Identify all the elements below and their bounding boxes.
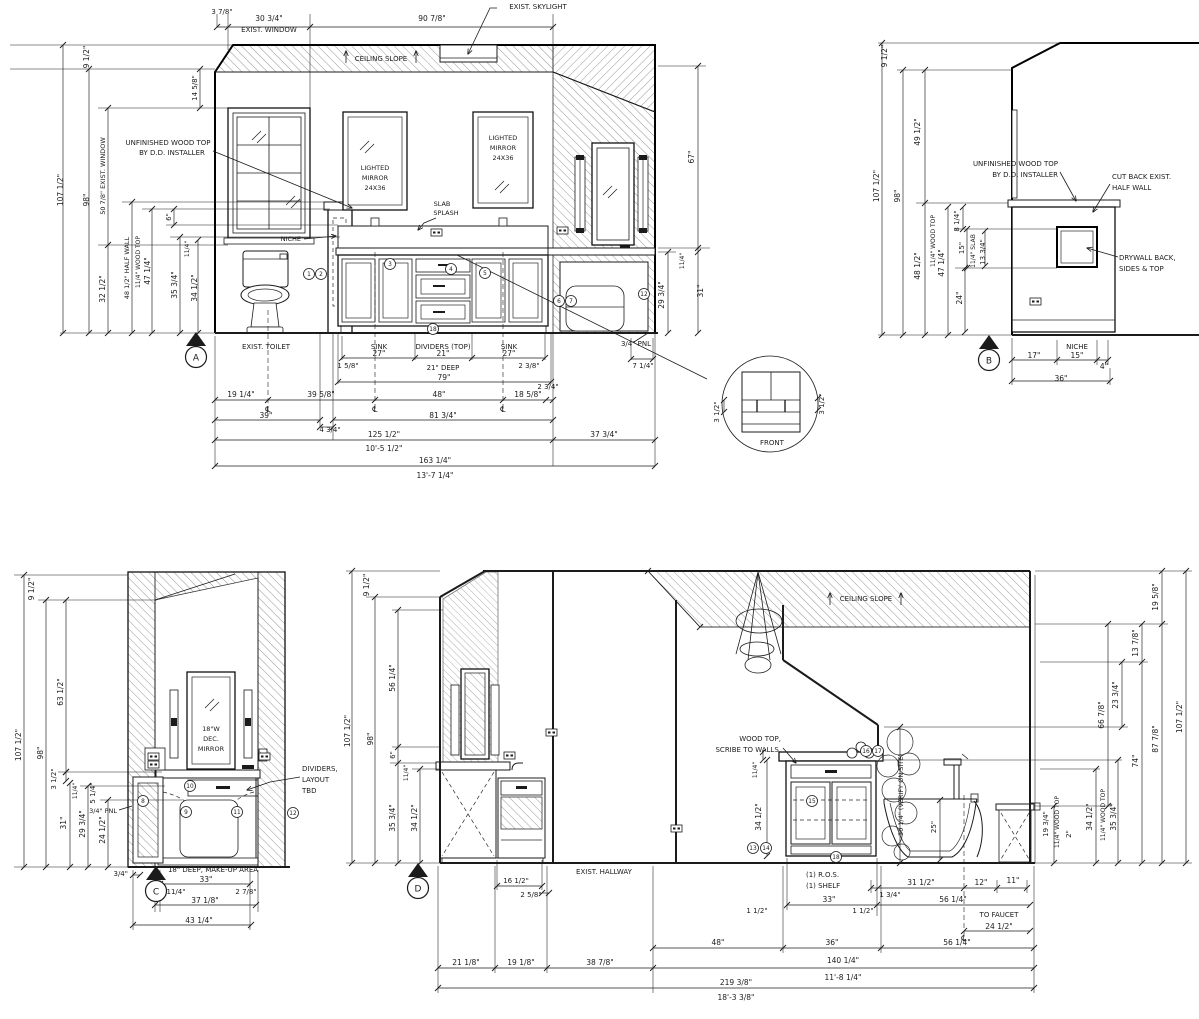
dim-label: 11/4" — [752, 762, 759, 778]
svg-text:2: 2 — [319, 272, 323, 278]
dim-label: EXIST. HALLWAY — [576, 868, 633, 876]
dim-label: 48 1/2" HALF WALL — [123, 236, 131, 299]
dim-label: CUT BACK EXIST. — [1112, 173, 1171, 181]
svg-text:17: 17 — [874, 749, 882, 755]
dim-label: 24" — [955, 292, 964, 305]
dim-label: 2 7/8" — [235, 888, 256, 896]
dim-label: 18 5/8" — [514, 390, 541, 399]
dim-label: 11/4" WOOD TOP — [1054, 796, 1061, 848]
dim-label: 19 1/8" — [507, 958, 534, 967]
callout-bubble-13: 13 — [748, 843, 759, 854]
callout-bubble-10: 10 — [185, 781, 196, 792]
callout-bubble-8: 8 — [138, 796, 149, 807]
vanity — [336, 218, 550, 333]
dim-label: 12" — [975, 878, 988, 887]
sconce-left — [575, 155, 585, 233]
dim-label: 3 1/2" — [50, 768, 58, 789]
dim-label: 67" — [687, 151, 696, 164]
dim-label: 98" — [893, 190, 902, 203]
dim-label: 16 1/2" — [503, 877, 529, 885]
dim-label: 34 1/2" — [1085, 803, 1094, 830]
dim-label: 29 3/4" — [78, 810, 87, 837]
dim-label: 19 5/8" — [1151, 583, 1160, 610]
dim-label: 31" — [696, 285, 705, 298]
dim-label: ℄ — [372, 405, 378, 414]
outlet-icon — [671, 825, 682, 832]
outlet-icon — [259, 753, 270, 760]
svg-text:11: 11 — [233, 810, 241, 816]
dim-label: 98" — [366, 733, 375, 746]
dim-label: DRYWALL BACK, — [1119, 254, 1176, 262]
dim-label: 66 7/8" — [1097, 701, 1106, 728]
dim-label: 219 3/8" — [720, 978, 752, 987]
svg-text:18: 18 — [832, 855, 840, 861]
dim-label: 24 1/2" — [98, 816, 107, 843]
dim-label: HALF WALL — [1112, 184, 1151, 192]
callout-bubble-7: 7 — [566, 296, 577, 307]
dim-label: EXIST. WINDOW — [241, 26, 297, 34]
dim-label: 107 1/2" — [343, 715, 352, 747]
dim-label: 107 1/2" — [872, 170, 881, 202]
dim-label: MIRROR — [490, 144, 517, 152]
dim-label: 19 3/4" — [1042, 811, 1050, 837]
dim-label: (1) SHELF — [806, 882, 840, 890]
dim-label: 1 1/2" — [746, 907, 767, 915]
dim-label: 98" — [82, 194, 91, 207]
dim-label: 56 1/4" — [388, 664, 397, 691]
callout-bubble-4: 4 — [446, 264, 457, 275]
outlet-icon — [546, 729, 557, 736]
dim-label: 3 1/2" — [713, 401, 721, 422]
dim-label: 7 1/4" — [632, 362, 653, 370]
dim-label: 36" — [826, 938, 839, 947]
dim-label: 81 3/4" — [429, 411, 456, 420]
dim-label: 3/4" — [114, 870, 129, 878]
dim-label: 15" — [958, 242, 966, 254]
dim-label: 49 1/2" — [913, 118, 922, 145]
dim-label: 14 5/8" — [191, 75, 199, 101]
dim-label: 32 1/2" — [98, 275, 107, 302]
callout-bubble-12: 12 — [639, 289, 650, 300]
dim-label: SPLASH — [433, 209, 458, 217]
callout-bubble-3: 3 — [385, 259, 396, 270]
dim-label: 11" — [1007, 876, 1020, 885]
svg-text:7: 7 — [569, 299, 573, 305]
svg-text:10: 10 — [186, 784, 194, 790]
dim-label: 2" — [1065, 830, 1073, 838]
dim-label: 47 1/4" — [143, 257, 152, 284]
dim-label: 23 3/4" — [1111, 681, 1120, 708]
wood-top — [1008, 200, 1120, 207]
dim-label: 11/4" SLAB — [970, 234, 977, 268]
svg-text:18: 18 — [429, 327, 437, 333]
callout-bubble-16: 16 — [861, 746, 872, 757]
outlet-icon — [431, 229, 442, 236]
dim-label: SLAB — [434, 200, 451, 208]
svg-text:3: 3 — [388, 262, 392, 268]
dim-label: EXIST. SKYLIGHT — [509, 3, 567, 11]
outlet-icon — [1030, 298, 1041, 305]
dim-label: 90 7/8" — [418, 14, 445, 23]
sconce-right — [244, 690, 252, 758]
dim-label: 24X36 — [365, 184, 386, 192]
dim-label: 31" — [59, 817, 68, 830]
dim-label: 11/4" — [72, 783, 79, 799]
dim-label: 63 1/2" — [56, 678, 65, 705]
dim-label: 39" — [260, 411, 273, 420]
dim-label: 107 1/2" — [56, 174, 65, 206]
callout-bubble-11: 11 — [232, 807, 243, 818]
svg-text:5: 5 — [483, 271, 487, 277]
svg-text:D: D — [415, 885, 422, 895]
dim-label: 13 7/8" — [1131, 629, 1140, 656]
dim-label: 38 7/8" — [586, 958, 613, 967]
sconce-right — [638, 155, 648, 233]
callout-bubble-6: 6 — [554, 296, 565, 307]
callout-bubble-15: 15 — [807, 796, 818, 807]
dim-label: DIVIDERS, — [302, 765, 338, 773]
dim-label: 140 1/4" — [827, 956, 859, 965]
dim-label: 3/4" PNL — [89, 807, 117, 815]
dim-label: 87 7/8" — [1151, 725, 1160, 752]
dim-label: BY D.D. INSTALLER — [992, 171, 1058, 179]
dim-label: TBD — [301, 787, 316, 795]
callout-bubble-2: 2 — [316, 269, 327, 280]
dim-label: 163 1/4" — [419, 456, 451, 465]
dim-label: 1 5/8" — [337, 362, 358, 370]
dim-label: 6" — [165, 213, 173, 221]
dim-label: CEILING SLOPE — [840, 595, 892, 603]
dim-label: UNFINISHED WOOD TOP — [973, 160, 1058, 168]
dim-label: 125 1/2" — [368, 430, 400, 439]
right-wall-hatch — [258, 572, 285, 867]
dim-label: 48" — [433, 390, 446, 399]
dim-label: 107 1/2" — [14, 729, 23, 761]
dim-label: 6" — [389, 751, 397, 759]
dim-label: LIGHTED — [361, 164, 390, 172]
svg-text:6: 6 — [557, 299, 561, 305]
dim-label: 17" — [1028, 351, 1041, 360]
dim-label: 21" — [437, 349, 450, 358]
svg-text:14: 14 — [762, 846, 770, 852]
dim-label: 37 1/8" — [191, 896, 218, 905]
sconce-left — [170, 690, 178, 758]
dim-label: 11/4" WOOD TOP — [1100, 789, 1107, 841]
svg-text:4: 4 — [449, 267, 453, 273]
dim-label: 13 3/4" — [979, 239, 987, 265]
callout-bubble-18: 18 — [428, 324, 439, 335]
dim-label: 107 1/2" — [1175, 701, 1184, 733]
dim-label: SCRIBE TO WALLS. — [715, 746, 781, 754]
dim-label: 47 1/4" — [937, 249, 946, 276]
dim-label: 18" DEEP, MAKE-UP AREA — [168, 866, 258, 874]
drawing-sheet: 3 7/8"30 3/4"EXIST. WINDOW90 7/8"EXIST. … — [0, 0, 1199, 1019]
callout-bubble-14: 14 — [761, 843, 772, 854]
dim-label: 4 3/4" — [319, 426, 340, 434]
svg-text:B: B — [986, 357, 992, 367]
dim-label: 43 1/4" — [185, 916, 212, 925]
dim-label: 18"W — [202, 725, 220, 733]
dim-label: SIDES & TOP — [1119, 265, 1164, 273]
dim-label: 11/4" WOOD TOP — [930, 215, 937, 267]
dim-label: DEC. — [203, 735, 219, 743]
dim-label: 15" — [1071, 351, 1084, 360]
dim-label: 1 1/2" — [852, 907, 873, 915]
dim-label: 4" — [1100, 362, 1108, 371]
dim-label: 3 1/2" — [818, 393, 826, 414]
dim-label: 11/4" WOOD TOP — [135, 236, 142, 288]
dim-label: 3 7/8" — [211, 8, 232, 16]
outlet-icon — [148, 753, 159, 760]
makeup-counter-right — [548, 241, 655, 331]
svg-text:15: 15 — [808, 799, 816, 805]
dim-label: CEILING SLOPE — [355, 55, 407, 63]
dim-label: MIRROR — [362, 174, 389, 182]
dim-label: 24 1/2" — [985, 922, 1012, 931]
dim-label: 19 1/4" — [227, 390, 254, 399]
dim-label: ℄ — [500, 405, 506, 414]
lighted-mirror-left — [343, 112, 407, 210]
dim-label: 98" — [36, 747, 45, 760]
svg-text:9: 9 — [184, 810, 188, 816]
dim-label: (1) R.O.S. — [806, 871, 839, 879]
dim-label: 9 1/2" — [82, 46, 91, 69]
callout-bubble-17: 17 — [873, 746, 884, 757]
dim-label: 11/4" — [403, 765, 410, 781]
callout-bubble-5: 5 — [480, 268, 491, 279]
dim-label: 35 3/4" — [388, 804, 397, 831]
dim-label: 11/4" — [679, 253, 686, 269]
dim-label: 29 3/4" — [657, 281, 666, 308]
dim-label: 30 3/4" — [255, 14, 282, 23]
svg-text:12: 12 — [289, 811, 297, 817]
dim-label: WOOD TOP, — [739, 735, 781, 743]
dim-label: 34 1/2" — [190, 274, 199, 301]
dim-label: 2 5/8" — [520, 891, 541, 899]
dim-label: 39 5/8" — [307, 390, 334, 399]
dim-label: 11/4" — [167, 888, 186, 896]
dim-label: 8 1/4" — [953, 210, 961, 231]
side-panel-cabinet — [133, 777, 163, 863]
dim-label: 5 1/4" — [89, 782, 97, 803]
dim-label: 36" — [1055, 374, 1068, 383]
dim-label: 9 1/2" — [27, 578, 36, 601]
dim-label: 2 3/8" — [518, 362, 539, 370]
dim-label: 56 1/4" — [943, 938, 970, 947]
tub-faucet — [954, 764, 959, 799]
medicine-mirror — [592, 143, 634, 245]
svg-text:13: 13 — [749, 846, 757, 852]
side-table — [996, 804, 1034, 862]
outlet-icon — [148, 761, 159, 768]
mirror-edge-profile — [1012, 110, 1017, 198]
dim-label: 50 7/8" EXIST. WINDOW — [99, 137, 107, 215]
dim-label: 27" — [503, 349, 516, 358]
dim-label: FRONT — [760, 439, 785, 447]
dim-label: 48 1/2" — [913, 252, 922, 279]
elevations-drawing: 3 7/8"30 3/4"EXIST. WINDOW90 7/8"EXIST. … — [0, 0, 1199, 1019]
svg-text:A: A — [193, 354, 200, 364]
dim-label: 34 1/2" — [410, 804, 419, 831]
dim-label: 50 1/4" (VERIFY ON SITE) — [897, 754, 905, 836]
dim-label: 3/4" PNL — [621, 340, 651, 348]
outlet-icon — [504, 752, 515, 759]
dim-label: 33" — [200, 875, 213, 884]
dim-label: LIGHTED — [489, 134, 518, 142]
dim-label: 35 3/4" — [1109, 803, 1118, 830]
dim-label: TO FAUCET — [979, 911, 1020, 919]
exist-window — [224, 108, 314, 244]
dim-label: BY D.D. INSTALLER — [139, 149, 205, 157]
dim-label: 48" — [712, 938, 725, 947]
dim-label: 21 1/8" — [452, 958, 479, 967]
dim-label: 35 3/4" — [170, 271, 179, 298]
dim-label: 34 1/2" — [754, 803, 763, 830]
dim-label: 24X36 — [493, 154, 514, 162]
dim-label: 10'-5 1/2" — [366, 444, 403, 453]
dim-label: 33" — [823, 895, 836, 904]
dim-label: UNFINISHED WOOD TOP — [125, 139, 210, 147]
svg-text:16: 16 — [862, 749, 870, 755]
dim-label: 2 3/4" — [537, 383, 558, 391]
dim-label: 18'-3 3/8" — [718, 993, 755, 1002]
dim-label: NICHE — [281, 235, 301, 243]
svg-text:8: 8 — [141, 799, 145, 805]
dim-label: 79" — [438, 373, 451, 382]
dim-label: MIRROR — [198, 745, 225, 753]
outlet-icon — [557, 227, 568, 234]
dim-label: 27" — [373, 349, 386, 358]
dim-label: 21" DEEP — [427, 364, 460, 372]
dim-label: 1 3/4" — [879, 891, 900, 899]
dim-label: 37 3/4" — [590, 430, 617, 439]
dim-label: NICHE — [1066, 343, 1088, 351]
dim-label: 74" — [1131, 755, 1140, 768]
dim-label: 9 1/2" — [362, 574, 371, 597]
callout-bubble-12: 12 — [288, 808, 299, 819]
dim-label: 11'-8 1/4" — [825, 973, 862, 982]
dim-label: 11/4" — [184, 241, 191, 257]
dim-label: 13'-7 1/4" — [417, 471, 454, 480]
callout-bubble-1: 1 — [304, 269, 315, 280]
svg-text:12: 12 — [640, 292, 648, 298]
svg-text:1: 1 — [307, 272, 311, 278]
dim-label: 31 1/2" — [907, 878, 934, 887]
dim-label: 25" — [930, 821, 938, 833]
dim-label: 9 1/2" — [880, 45, 889, 68]
dim-label: EXIST. TOILET — [242, 343, 291, 351]
dim-label: LAYOUT — [302, 776, 330, 784]
dec-mirror — [187, 672, 235, 769]
svg-text:C: C — [153, 888, 159, 898]
dim-label: 56 1/4" — [939, 895, 966, 904]
tub-vanity — [779, 742, 883, 856]
half-wall — [1012, 207, 1115, 332]
callout-bubble-18: 18 — [831, 852, 842, 863]
callout-bubble-9: 9 — [181, 807, 192, 818]
